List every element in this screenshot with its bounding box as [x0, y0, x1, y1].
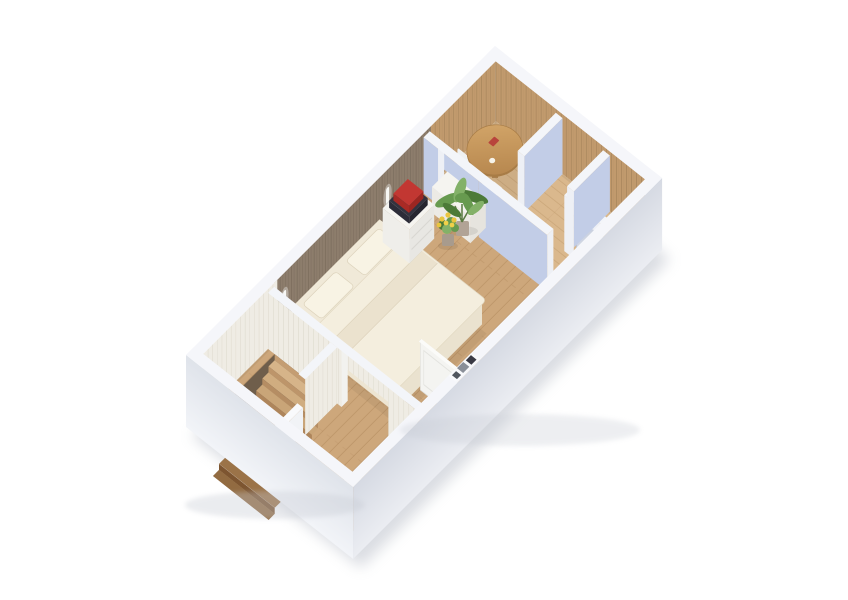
floorplan-page — [0, 0, 848, 600]
leaf — [455, 193, 469, 203]
plant-pot — [442, 234, 454, 246]
flower — [437, 223, 442, 228]
base-shadow-left — [185, 491, 365, 519]
flower — [445, 212, 450, 217]
flower — [450, 223, 455, 228]
flower — [439, 216, 444, 221]
partition-end-cap — [567, 186, 574, 247]
floorplan-render — [0, 0, 848, 600]
flower — [451, 217, 456, 222]
base-shadow-right — [400, 414, 640, 446]
flower — [444, 221, 449, 226]
